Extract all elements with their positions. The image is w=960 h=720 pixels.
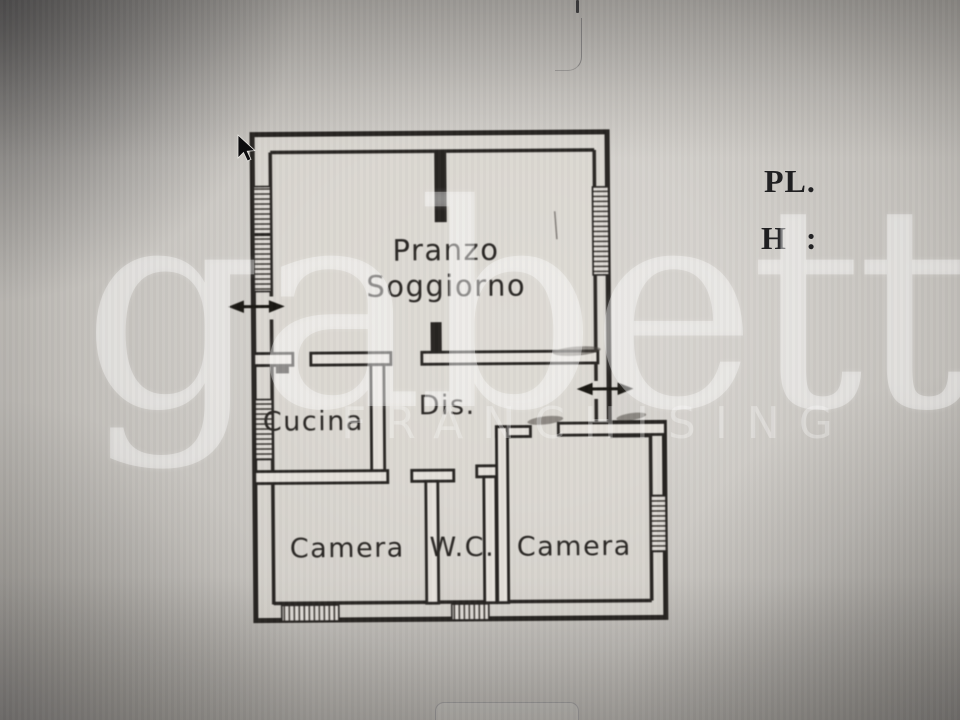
room-label-dis: Dis. xyxy=(419,390,476,421)
wall-camera-left-top xyxy=(255,471,388,484)
partition-pranzo-lower xyxy=(431,322,442,354)
wall-wc-left-cap xyxy=(412,470,454,481)
window-camera-right xyxy=(651,495,666,551)
floor-plan-drawing: Pranzo Soggiorno Cucina Dis. Camera W.C.… xyxy=(0,0,960,720)
room-label-camera-left: Camera xyxy=(290,532,405,564)
partition-pranzo-upper xyxy=(434,151,447,222)
room-label-cucina: Cucina xyxy=(263,406,364,438)
window-camera-left-bottom xyxy=(282,605,339,621)
bottom-ui-element-peek xyxy=(435,702,579,720)
room-label-pranzo: Pranzo xyxy=(392,233,499,268)
room-label-wc: W.C. xyxy=(429,532,495,564)
screen-scratch-top xyxy=(576,0,579,13)
window-left-upper xyxy=(253,186,271,291)
wall-camera-right-top xyxy=(558,422,665,435)
screen-photo: Pranzo Soggiorno Cucina Dis. Camera W.C.… xyxy=(0,0,960,720)
room-label-camera-right: Camera xyxy=(517,531,632,563)
wall-cucina-right xyxy=(371,365,385,473)
window-right-soggiorno xyxy=(592,187,609,275)
room-label-soggiorno: Soggiorno xyxy=(366,268,526,303)
floor-annotation: PL. xyxy=(764,163,816,200)
window-wc-bottom xyxy=(452,604,489,620)
wall-camera-right-left xyxy=(496,427,508,603)
wall-cucina-top-left-stub xyxy=(254,353,293,365)
wall-left-jog xyxy=(276,364,289,373)
height-annotation: H : xyxy=(761,220,823,257)
